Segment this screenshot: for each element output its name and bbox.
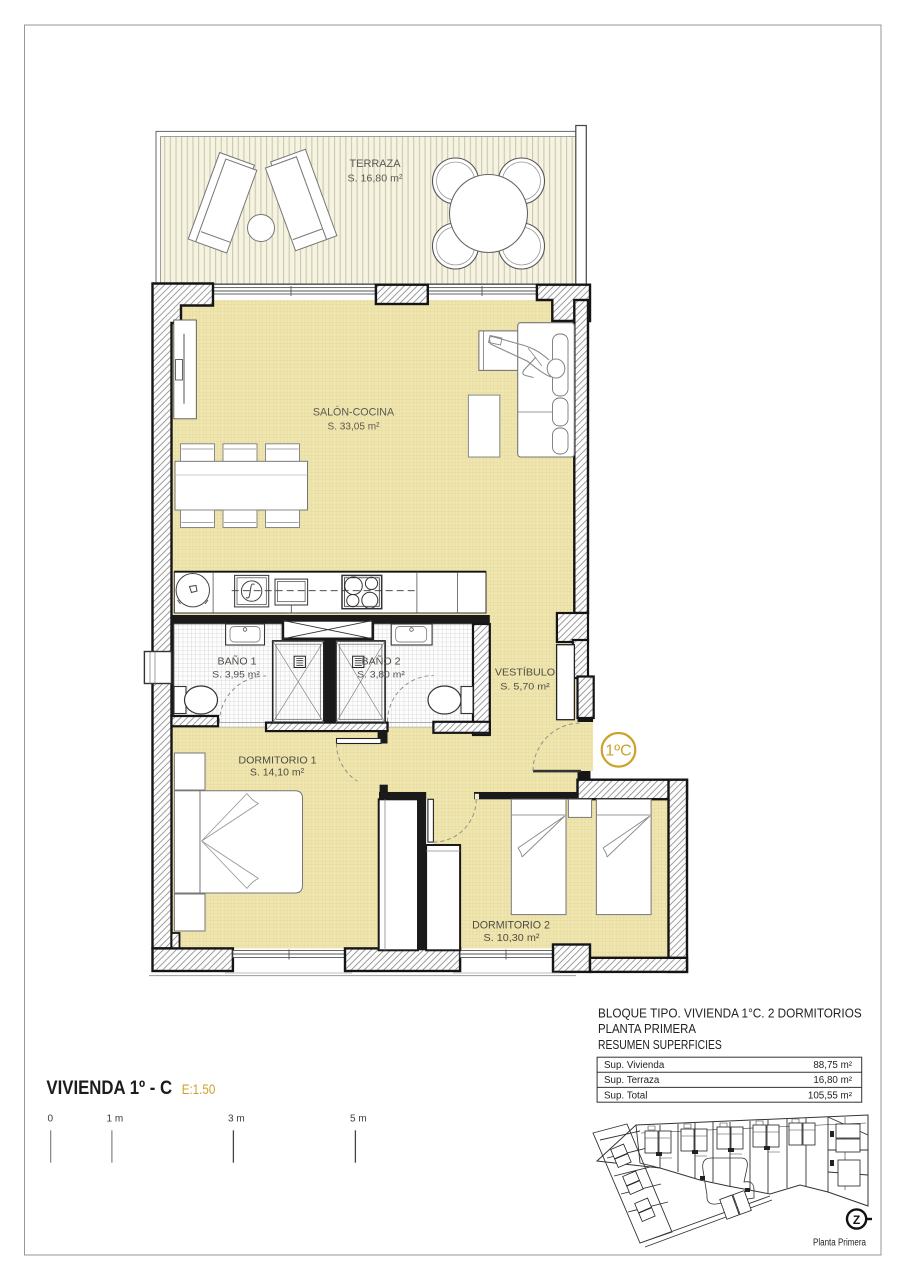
- svg-text:5 m: 5 m: [350, 1114, 367, 1125]
- svg-text:S. 10,30 m²: S. 10,30 m²: [484, 933, 541, 944]
- svg-text:Planta Primera: Planta Primera: [813, 1238, 866, 1249]
- svg-text:BAÑO 2: BAÑO 2: [362, 655, 401, 668]
- svg-text:VESTÍBULO: VESTÍBULO: [495, 666, 555, 679]
- svg-text:105,55 m²: 105,55 m²: [808, 1091, 853, 1102]
- svg-text:S. 33,05 m²: S. 33,05 m²: [328, 422, 381, 433]
- svg-text:1 m: 1 m: [107, 1114, 124, 1125]
- svg-text:SALÓN-COCINA: SALÓN-COCINA: [313, 406, 395, 419]
- svg-text:BLOQUE TIPO. VIVIENDA 1°C. 2 D: BLOQUE TIPO. VIVIENDA 1°C. 2 DORMITORIOS: [598, 1007, 862, 1021]
- svg-text:S. 3,80 m²: S. 3,80 m²: [357, 670, 405, 681]
- svg-text:S. 16,80 m²: S. 16,80 m²: [348, 174, 404, 185]
- svg-text:S. 5,70 m²: S. 5,70 m²: [500, 682, 550, 693]
- svg-text:RESUMEN SUPERFICIES: RESUMEN SUPERFICIES: [598, 1038, 722, 1052]
- svg-text:Sup. Terraza: Sup. Terraza: [604, 1075, 660, 1086]
- svg-text:DORMITORIO 1: DORMITORIO 1: [238, 755, 316, 767]
- svg-text:1ºC: 1ºC: [605, 743, 631, 760]
- svg-text:E:1.50: E:1.50: [182, 1081, 216, 1097]
- svg-text:16,80 m²: 16,80 m²: [813, 1075, 852, 1086]
- svg-text:S. 3,95 m²: S. 3,95 m²: [212, 670, 260, 681]
- svg-text:Sup. Total: Sup. Total: [604, 1091, 647, 1102]
- svg-text:3 m: 3 m: [228, 1114, 245, 1125]
- svg-text:Z: Z: [853, 1213, 860, 1227]
- svg-text:DORMITORIO 2: DORMITORIO 2: [472, 920, 550, 932]
- svg-text:TERRAZA: TERRAZA: [350, 158, 402, 170]
- svg-text:PLANTA PRIMERA: PLANTA PRIMERA: [598, 1022, 697, 1036]
- svg-text:0: 0: [48, 1114, 54, 1125]
- svg-text:S. 14,10 m²: S. 14,10 m²: [250, 768, 305, 779]
- svg-text:BAÑO 1: BAÑO 1: [218, 655, 257, 668]
- svg-text:88,75 m²: 88,75 m²: [813, 1060, 852, 1071]
- svg-text:Sup. Vivienda: Sup. Vivienda: [604, 1060, 665, 1071]
- svg-text:VIVIENDA 1º - C: VIVIENDA 1º - C: [46, 1077, 172, 1099]
